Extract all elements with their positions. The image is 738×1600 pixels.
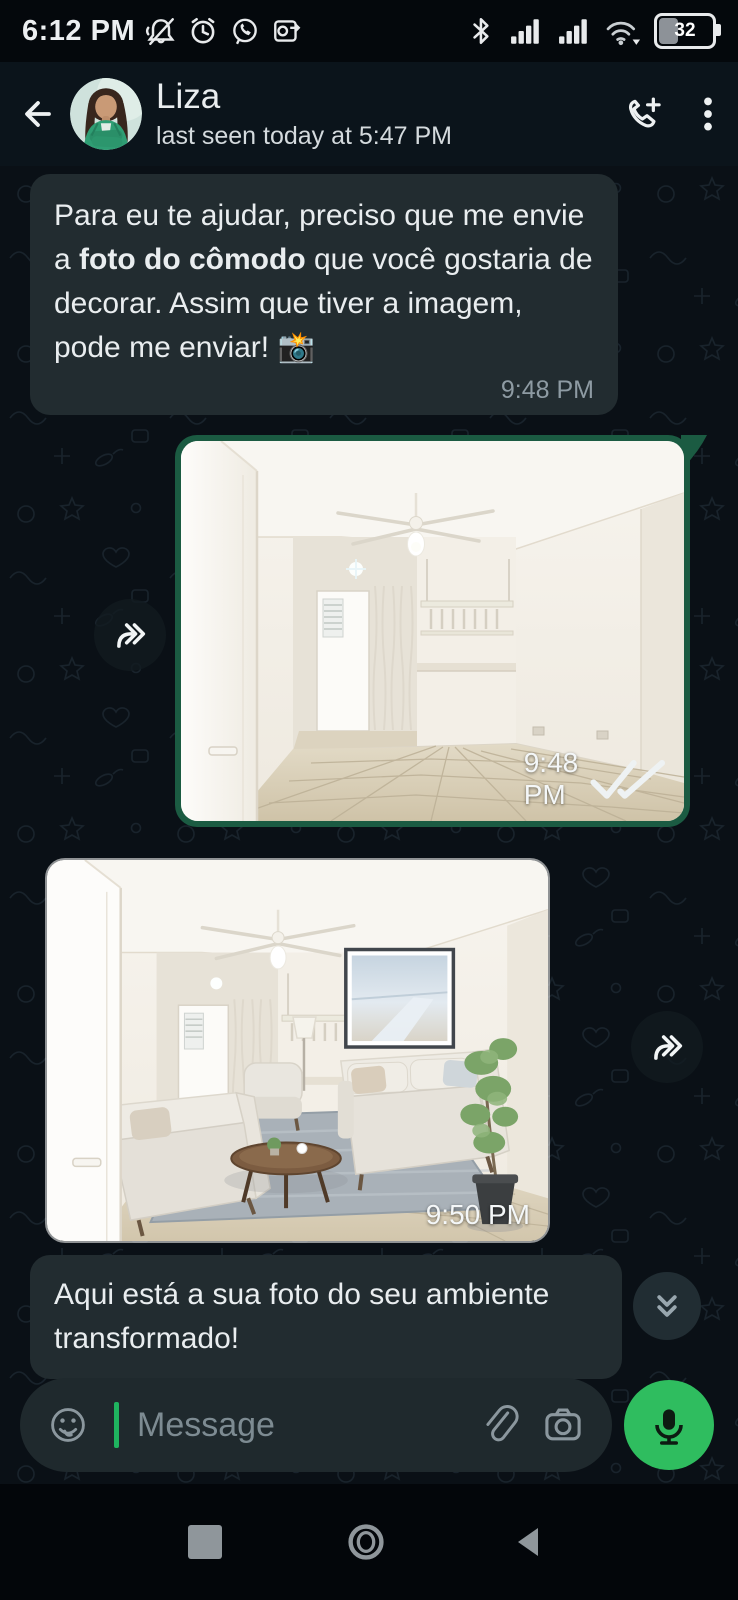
battery-percent: 32 xyxy=(674,20,695,42)
contact-info[interactable]: Liza last seen today at 5:47 PM xyxy=(156,77,452,150)
bluetooth-icon xyxy=(468,15,496,47)
back-button[interactable] xyxy=(16,92,60,136)
chat-header: Liza last seen today at 5:47 PM xyxy=(0,62,738,166)
android-nav-bar xyxy=(0,1484,738,1600)
incoming-message-bubble[interactable]: Para eu te ajudar, preciso que me envie … xyxy=(30,174,618,415)
menu-button[interactable] xyxy=(700,91,716,137)
message-text: Aqui está a sua foto do seu ambiente tra… xyxy=(54,1273,598,1361)
received-room-photo[interactable]: 9:50 PM xyxy=(47,860,548,1241)
forward-button[interactable] xyxy=(94,599,166,671)
voice-message-button[interactable] xyxy=(624,1380,714,1470)
add-call-button[interactable] xyxy=(620,91,666,137)
bubble-tail xyxy=(681,435,707,469)
forward-button[interactable] xyxy=(631,1011,703,1083)
sticker-emoji-icon[interactable] xyxy=(46,1403,90,1447)
sent-room-photo[interactable]: 9:48 PM xyxy=(181,441,684,821)
alarm-icon xyxy=(187,15,219,47)
incoming-message-bubble[interactable]: Aqui está a sua foto do seu ambiente tra… xyxy=(30,1255,622,1379)
notifications-muted-icon xyxy=(145,15,177,47)
read-receipt-double-check-icon xyxy=(589,751,666,808)
back-nav-button[interactable] xyxy=(510,1522,550,1562)
image-meta: 9:50 PM xyxy=(426,1199,530,1231)
status-bar: 6:12 PM 32 xyxy=(0,0,738,62)
camera-icon[interactable] xyxy=(540,1402,586,1448)
message-time: 9:48 PM xyxy=(524,747,581,811)
outgoing-image-bubble[interactable]: 9:48 PM xyxy=(175,435,690,827)
text-cursor xyxy=(114,1402,119,1448)
incoming-image-bubble[interactable]: 9:50 PM xyxy=(45,858,550,1243)
cell-signal-sim1-icon xyxy=(508,15,544,47)
message-text: Para eu te ajudar, preciso que me envie … xyxy=(54,194,594,370)
cell-signal-sim2-icon xyxy=(556,15,592,47)
last-seen-status: last seen today at 5:47 PM xyxy=(156,122,452,151)
message-input-bar[interactable]: Message xyxy=(20,1378,612,1472)
avatar[interactable] xyxy=(70,78,142,150)
recents-button[interactable] xyxy=(188,1525,222,1559)
outlook-icon xyxy=(271,15,303,47)
clock-time: 6:12 PM xyxy=(22,15,135,48)
scroll-to-bottom-button[interactable] xyxy=(633,1272,701,1340)
message-input[interactable]: Message xyxy=(137,1406,460,1445)
image-meta: 9:48 PM xyxy=(524,747,666,811)
wifi-icon xyxy=(604,15,642,47)
battery-icon: 32 xyxy=(654,13,716,49)
message-time: 9:48 PM xyxy=(54,376,594,405)
contact-name: Liza xyxy=(156,77,452,117)
whatsapp-icon xyxy=(229,15,261,47)
home-button[interactable] xyxy=(344,1520,388,1564)
conversation-area: Para eu te ajudar, preciso que me envie … xyxy=(0,166,738,1484)
attachment-icon[interactable] xyxy=(478,1403,522,1447)
message-time: 9:50 PM xyxy=(426,1199,530,1231)
